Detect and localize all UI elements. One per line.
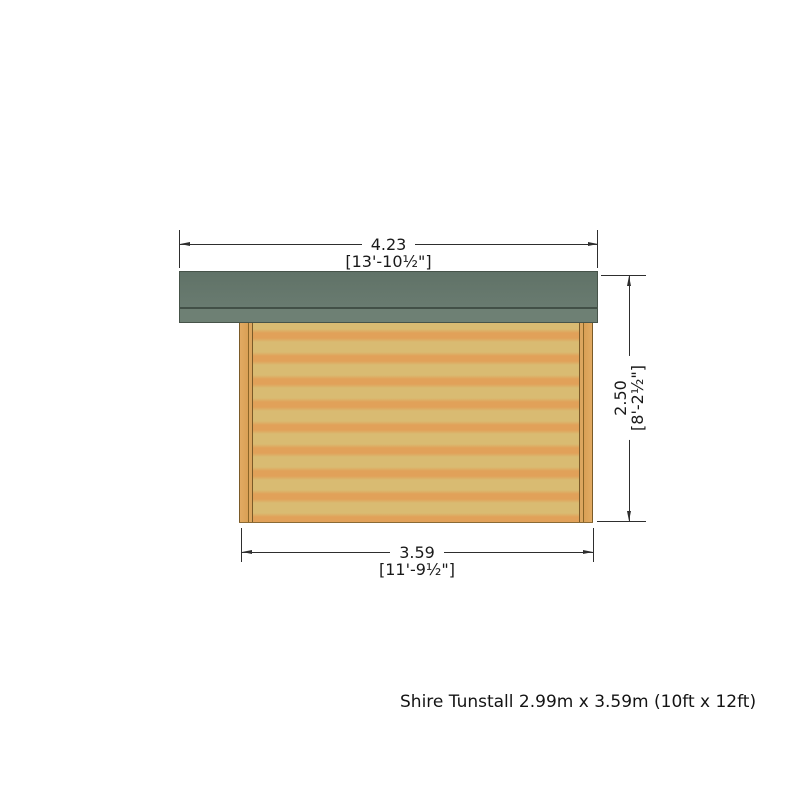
drawing-caption: Shire Tunstall 2.99m x 3.59m (10ft x 12f… [400, 692, 756, 712]
arrowhead-up-icon [627, 276, 631, 286]
extension-line-right-bottom [597, 521, 646, 522]
corner-post-right [579, 323, 593, 522]
extension-line-right-top [601, 275, 646, 276]
dimension-bottom-metric: 3.59 [390, 544, 444, 561]
dimension-right-metric: 2.50 [612, 356, 629, 440]
elevation-page: 4.23 [13'-10½"] 2.50 [8'-2½"] 3.59 [11'-… [0, 0, 800, 800]
dimension-bottom-imperial: [11'-9½"] [379, 560, 455, 579]
dimension-top-label: 4.23 [13'-10½"] [179, 236, 598, 270]
dimension-top-metric: 4.23 [362, 236, 416, 253]
wall-log-cladding [239, 323, 593, 523]
dimension-top-imperial: [13'-10½"] [345, 252, 431, 271]
dimension-bottom-label: 3.59 [11'-9½"] [241, 544, 593, 578]
extension-line-bottom-right [593, 528, 594, 562]
corner-post-left [239, 323, 253, 522]
arrowhead-down-icon [627, 511, 631, 521]
dimension-right-imperial: [8'-2½"] [629, 356, 646, 440]
dimension-right-label: 2.50 [8'-2½"] [612, 356, 646, 440]
roof-panel [179, 271, 598, 323]
